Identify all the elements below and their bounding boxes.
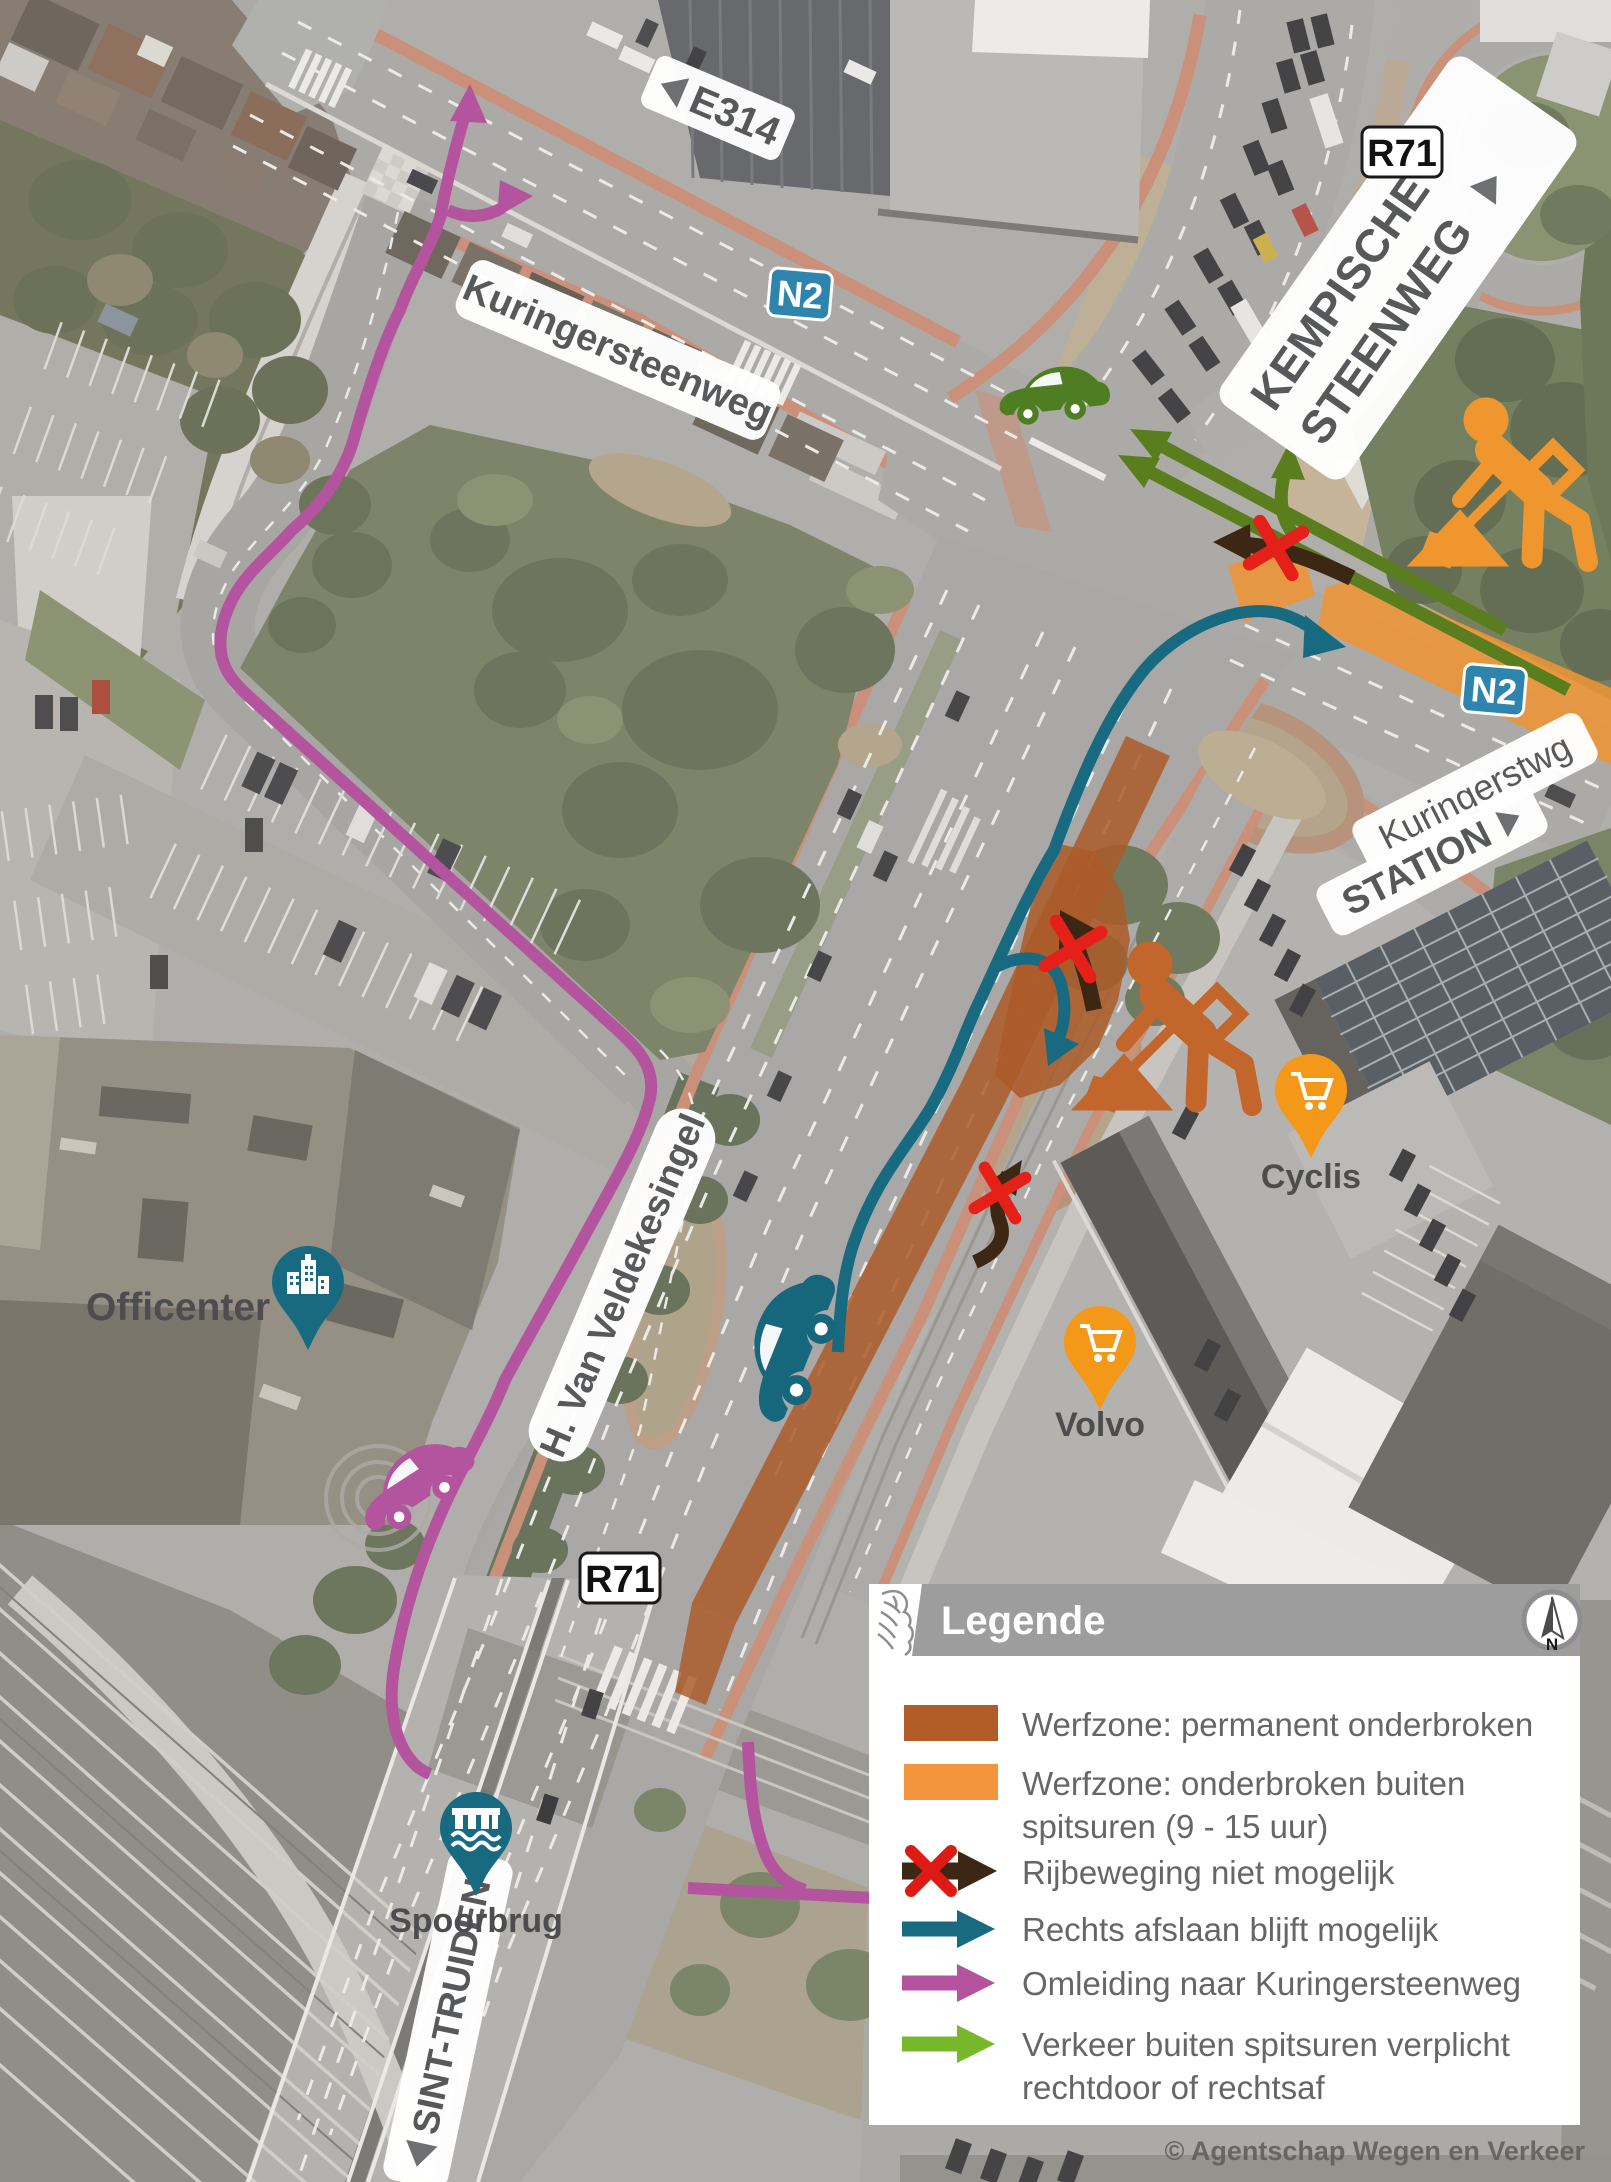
svg-text:Werfzone: onderbroken buiten: Werfzone: onderbroken buiten bbox=[1022, 1765, 1465, 1802]
svg-text:R71: R71 bbox=[585, 1559, 655, 1601]
svg-text:spitsuren (9 - 15 uur): spitsuren (9 - 15 uur) bbox=[1022, 1808, 1328, 1845]
svg-text:Officenter: Officenter bbox=[86, 1286, 270, 1329]
svg-text:Spoorbrug: Spoorbrug bbox=[389, 1902, 563, 1940]
svg-text:Volvo: Volvo bbox=[1055, 1406, 1145, 1444]
svg-text:R71: R71 bbox=[1367, 133, 1437, 175]
svg-text:Omleiding naar Kuringersteenwe: Omleiding naar Kuringersteenweg bbox=[1022, 1965, 1521, 2002]
svg-text:rechtdoor of rechtsaf: rechtdoor of rechtsaf bbox=[1022, 2069, 1325, 2106]
svg-text:Legende: Legende bbox=[941, 1599, 1105, 1643]
svg-text:Cyclis: Cyclis bbox=[1261, 1158, 1361, 1196]
svg-text:N2: N2 bbox=[1469, 668, 1518, 713]
svg-text:Verkeer buiten spitsuren verpl: Verkeer buiten spitsuren verplicht bbox=[1022, 2026, 1510, 2063]
svg-text:N2: N2 bbox=[775, 272, 824, 317]
svg-text:N: N bbox=[1546, 1635, 1558, 1654]
svg-text:Werfzone: permanent onderbroke: Werfzone: permanent onderbroken bbox=[1022, 1706, 1533, 1743]
svg-text:Rechts afslaan blijft mogelijk: Rechts afslaan blijft mogelijk bbox=[1022, 1911, 1439, 1948]
svg-text:Rijbeweging niet mogelijk: Rijbeweging niet mogelijk bbox=[1022, 1854, 1395, 1891]
svg-text:© Agentschap Wegen en Verkeer: © Agentschap Wegen en Verkeer bbox=[1164, 2136, 1585, 2166]
